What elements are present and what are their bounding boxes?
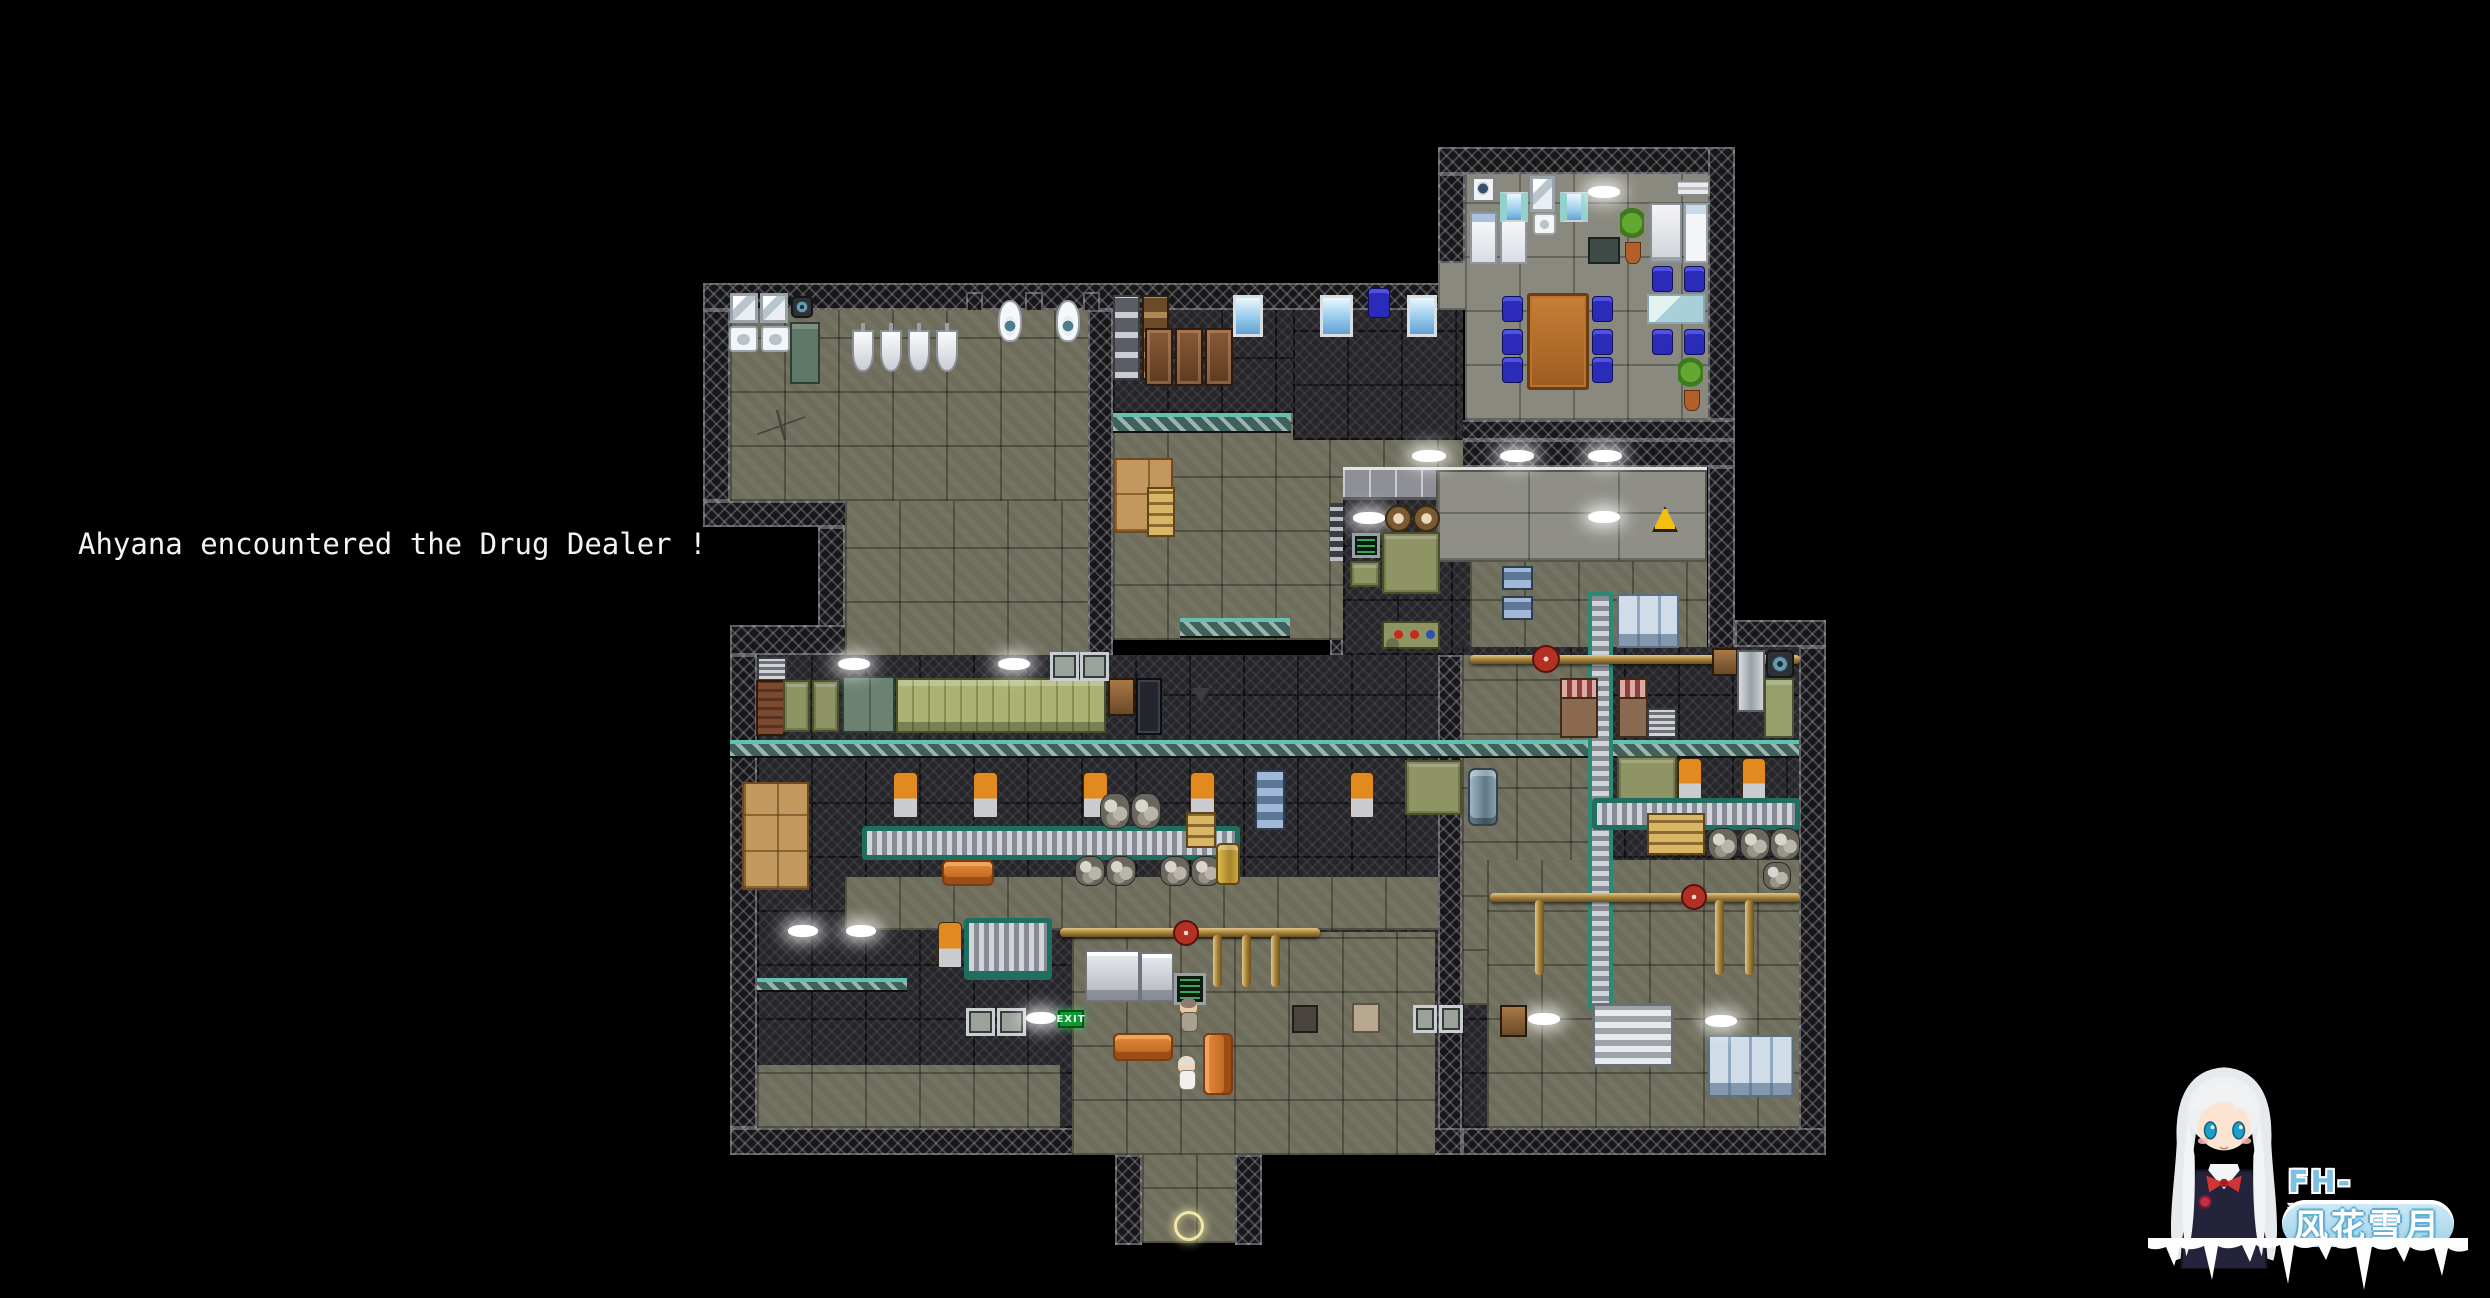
ac-vent (1676, 180, 1710, 196)
olive-machine (783, 680, 810, 732)
floor-grate (1647, 708, 1677, 738)
office-chair (1684, 266, 1705, 292)
wall-fan-icon (791, 296, 813, 318)
window (1233, 295, 1263, 337)
catwalk-corridor (1113, 413, 1291, 433)
caged-machine (1439, 1005, 1463, 1033)
ribbon-knot (2220, 1179, 2228, 1187)
watermark: FH-XY.NET 风花雪月 (2140, 1055, 2470, 1295)
robot-arm (1742, 758, 1766, 802)
urinal (880, 330, 902, 372)
blue-panel (1502, 566, 1533, 590)
glass-table (1647, 294, 1705, 324)
floor-corridor-dark-2 (1293, 310, 1463, 440)
rose-brooch (2199, 1196, 2211, 1208)
wall-vent (757, 657, 787, 681)
sink (761, 326, 790, 352)
scrap-pile (1770, 828, 1800, 860)
wall-breakroom-right (1708, 147, 1735, 420)
air-duct (1737, 650, 1765, 712)
server-rack (1136, 678, 1162, 735)
toilet (1056, 300, 1080, 342)
blush-right (2241, 1138, 2252, 1144)
wall-breakroom-bottom (1438, 420, 1735, 440)
mirror (760, 293, 788, 323)
robot-arm (893, 772, 918, 818)
washing-machine (1472, 177, 1495, 202)
ceiling-light (1026, 1012, 1056, 1024)
banded-crate (1147, 487, 1175, 537)
tall-mirror (1530, 176, 1555, 212)
pipe-valve (1532, 645, 1560, 673)
robot-arm (1678, 758, 1702, 802)
battle-log-message: Ahyana encountered the Drug Dealer ! (78, 527, 707, 561)
blue-barrel (1468, 768, 1498, 826)
wall-right (1799, 647, 1826, 1155)
wall-ladder (1330, 503, 1343, 561)
wall-bathroom-bottom (703, 501, 848, 527)
wall-hall-left (730, 655, 757, 1128)
npc-drug-dealer[interactable] (1178, 998, 1199, 1032)
floor-break-doorway (1438, 263, 1465, 310)
button-panel (1382, 621, 1440, 649)
blue-panel (1502, 596, 1533, 620)
office-chair (1502, 357, 1523, 383)
scrap-pile (1160, 856, 1190, 886)
wall-bottom-right (1462, 1128, 1826, 1155)
toilet (998, 300, 1022, 342)
brown-panel (756, 680, 785, 736)
wall-mid-divider (1438, 655, 1462, 1130)
catwalk-small (757, 978, 907, 992)
urinal (936, 330, 958, 372)
left-eye-icon (2205, 1122, 2217, 1139)
copier-machine (1085, 950, 1140, 1002)
pipe-valve (1173, 920, 1199, 946)
office-chair (1502, 296, 1523, 322)
robot-arm (973, 772, 998, 818)
yellow-barrel (1216, 843, 1240, 885)
caged-machine (997, 1008, 1026, 1036)
caged-machine (1050, 652, 1079, 681)
scrap-pile (1708, 828, 1738, 860)
electrical-panel-row (896, 678, 1106, 733)
ceiling-light (1588, 511, 1620, 523)
caged-machine (1080, 652, 1109, 681)
ceiling-light (1705, 1015, 1737, 1027)
blue-locker (1708, 1035, 1794, 1097)
curtained-window (1560, 192, 1588, 222)
ceiling-light (838, 658, 870, 670)
olive-machine (1405, 760, 1462, 815)
blue-locker (1617, 594, 1679, 648)
floor-neck (845, 501, 1088, 657)
orange-sofa (1113, 1033, 1173, 1061)
gold-pipe-drop (1535, 900, 1544, 975)
ceiling-light (1588, 450, 1622, 462)
control-console (1350, 561, 1380, 587)
office-chair (1592, 329, 1613, 355)
exit-sign: EXIT (1058, 1010, 1084, 1028)
wall-engine-right (1708, 467, 1735, 655)
water-cooler (1470, 212, 1497, 264)
gold-pipe-drop (1715, 900, 1724, 975)
wall-right-step (1735, 620, 1826, 647)
curtained-window (1500, 192, 1528, 222)
office-chair (1592, 357, 1613, 383)
ceiling-light (846, 925, 876, 937)
wall-breakroom-left (1438, 174, 1465, 263)
green-cabinet (1764, 678, 1794, 738)
gold-pipe-drop (1213, 935, 1222, 987)
pipe-valve (1681, 884, 1707, 910)
scrap-pile (1740, 828, 1770, 860)
floor-corridor-dark-1 (1113, 310, 1293, 413)
metal-shelf (1113, 295, 1140, 380)
urinal (908, 330, 930, 372)
scrap-pile (1106, 856, 1136, 886)
dark-cabinet (1588, 237, 1620, 264)
pallet-crates (1186, 812, 1216, 848)
wall-stub-left (1115, 1155, 1142, 1245)
catwalk-corridor-2 (1180, 618, 1290, 638)
conveyor-belt (862, 826, 1240, 860)
robot-unit (1500, 1005, 1527, 1037)
pallet-crates (1647, 813, 1705, 855)
robot-arm (1350, 772, 1374, 818)
wall-breakroom-top (1438, 147, 1735, 174)
wall-sink (1533, 213, 1556, 235)
copier-machine (1140, 952, 1174, 1002)
window (1320, 295, 1353, 337)
player-ahyana[interactable] (1176, 1056, 1197, 1090)
ceiling-light (1412, 450, 1446, 462)
waiting-chair (1368, 288, 1390, 318)
crate-stack (742, 782, 809, 890)
robot-arm (938, 922, 962, 968)
green-locker (790, 322, 820, 384)
louver-vent (1592, 1003, 1674, 1067)
caged-machine (1413, 1005, 1437, 1033)
wall-left-upper (703, 310, 730, 501)
refrigerator (1650, 203, 1682, 263)
right-eye-icon (2233, 1122, 2245, 1139)
scrap-pile (1075, 856, 1105, 886)
mirror (730, 293, 758, 323)
urinal (852, 330, 874, 372)
wall-bath-corridor-divider (1088, 310, 1113, 655)
dark-machine (1292, 1005, 1318, 1033)
double-conveyor (964, 918, 1052, 980)
office-chair (1684, 329, 1705, 355)
ceiling-light (998, 658, 1030, 670)
office-chair (1652, 266, 1673, 292)
caged-machine (966, 1008, 995, 1036)
vending-machine (1618, 678, 1648, 738)
potted-plant (1620, 206, 1644, 264)
ceiling-light (1353, 512, 1385, 524)
meeting-table (1527, 293, 1589, 390)
brown-locker (1175, 328, 1203, 386)
pressure-gauge (1385, 505, 1412, 532)
ceiling-light (1528, 1013, 1560, 1025)
orange-sofa (942, 860, 994, 886)
fan-unit-icon (1766, 650, 1794, 678)
sink (729, 326, 758, 352)
floor-hall-olive-band (845, 877, 1438, 930)
teleport-glow-ring[interactable] (1174, 1211, 1204, 1241)
tan-machine (1352, 1003, 1380, 1033)
brown-locker (1205, 328, 1233, 386)
olive-cabinet (1382, 532, 1440, 594)
ceiling-light (1500, 450, 1534, 462)
terminal-screen (1352, 533, 1380, 558)
gold-pipe-drop (1271, 935, 1280, 987)
vending-machine (1560, 678, 1598, 738)
floor-crack (757, 410, 805, 440)
scrap-pile (1100, 793, 1130, 829)
server-rack-blue (1255, 770, 1285, 830)
wall-stub-right (1235, 1155, 1262, 1245)
gold-pipe-drop (1242, 935, 1251, 987)
floor-left-corridor (757, 1065, 1060, 1128)
dish-cabinet (1684, 203, 1708, 263)
game-viewport[interactable]: EXIT (0, 0, 2490, 1295)
game-screen: { "meta": {"width": 2490, "height": 1295… (0, 0, 2490, 1295)
blush-left (2198, 1138, 2209, 1144)
gold-pipe-drop (1745, 900, 1754, 975)
office-chair (1652, 329, 1673, 355)
window (1407, 295, 1437, 337)
brown-locker (1145, 328, 1173, 386)
ceiling-light (788, 925, 818, 937)
olive-machine (1617, 756, 1677, 802)
pressure-gauge (1413, 505, 1440, 532)
robot-unit (1712, 648, 1738, 676)
green-double-locker (842, 676, 895, 733)
robot-unit (1108, 678, 1135, 716)
ceiling-light (1588, 186, 1620, 198)
office-chair (1502, 329, 1523, 355)
orange-sofa-vertical (1203, 1033, 1233, 1095)
icicles-decoration (2148, 1238, 2468, 1298)
scrap-pile (1763, 862, 1791, 890)
scrap-pile (1131, 793, 1161, 829)
office-chair (1592, 296, 1613, 322)
potted-plant (1678, 356, 1703, 411)
olive-machine (812, 680, 839, 732)
